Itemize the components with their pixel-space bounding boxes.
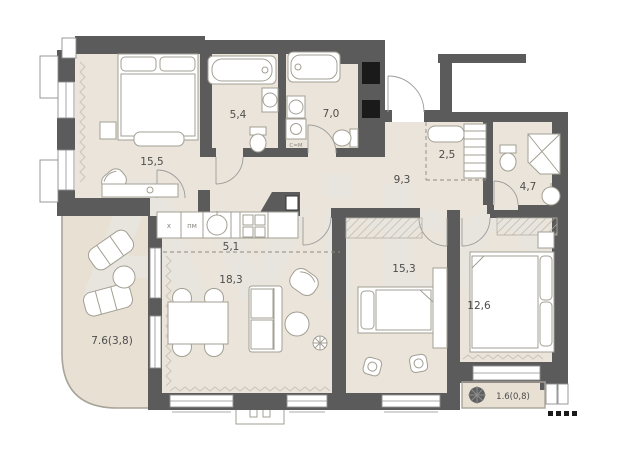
- coffee-table-icon: [285, 312, 309, 336]
- room-label-balcony-large: 7.6(3,8): [91, 335, 133, 347]
- neighbor-box-2: [558, 384, 568, 404]
- kitchen-duct: [286, 196, 298, 210]
- wall-shaft-column: [358, 40, 385, 157]
- room-label-bathroom-1: 5,4: [230, 109, 247, 121]
- toilet-icon: [500, 153, 516, 171]
- sofa-icon: [249, 286, 282, 352]
- plant-icon: [313, 336, 327, 350]
- kitchen-sink-icon: [207, 215, 227, 235]
- dining-table-icon: [168, 302, 228, 344]
- room-label-kitchen: 5,1: [223, 241, 240, 253]
- wall-neighbor-band: [438, 54, 526, 63]
- dresser-icon: [433, 268, 447, 348]
- facade-details: [172, 410, 438, 424]
- floorplan-image: Avito: [0, 0, 640, 452]
- wall-bath-bath: [278, 54, 286, 157]
- floorplan-svg: Avito: [0, 0, 640, 452]
- pillow-icon: [121, 57, 156, 71]
- wall-bath-bottom-1: [205, 148, 216, 157]
- room-label-balcony-small: 1.6(0,8): [496, 392, 530, 402]
- bed-bench-icon: [134, 132, 184, 146]
- room-label-hallway: 9,3: [394, 174, 411, 186]
- nightstand-icon: [538, 232, 554, 248]
- toilet-icon: [250, 134, 266, 152]
- wall-pier: [340, 40, 358, 64]
- console-icon: [102, 184, 178, 197]
- window-balcony-2: [150, 316, 161, 368]
- room-label-bedroom-3: 12,6: [467, 300, 491, 312]
- nightstand-icon: [100, 122, 116, 139]
- pillow-icon: [540, 256, 552, 300]
- dishwasher-label: пм: [187, 222, 197, 230]
- pillow-icon: [361, 291, 374, 329]
- wardrobe-hatch-bedroom2: [346, 218, 422, 238]
- entrance-door-arc: [388, 76, 424, 112]
- room-label-bedroom-2: 15,3: [392, 263, 415, 275]
- shaft-niche-1: [362, 62, 380, 84]
- pillow-icon: [160, 57, 195, 71]
- boundary-dots: [548, 411, 577, 416]
- pilaster-left-2: [40, 160, 58, 202]
- washing-machine-label: С=М: [289, 143, 302, 149]
- window-balcony-1: [150, 248, 161, 298]
- shaft-niche-2: [362, 100, 380, 118]
- wall-left-2: [57, 118, 75, 150]
- wall-entry-vert: [440, 54, 452, 122]
- bench-icon: [428, 126, 464, 142]
- room-label-bathroom-3: 4,7: [520, 181, 537, 193]
- room-label-bathroom-2: 7,0: [323, 108, 340, 120]
- wall-bedroom-bottom: [57, 198, 150, 216]
- kitchen-furniture: х пм: [157, 211, 298, 238]
- room-label-living: 18,3: [219, 274, 242, 286]
- sink-icon: [542, 187, 560, 205]
- pilaster-top: [62, 38, 76, 58]
- toilet-tank: [500, 145, 516, 153]
- wall-bedroom3-top: [490, 210, 556, 218]
- pouf-icon: [409, 354, 429, 374]
- wall-living-bedroom2: [332, 210, 346, 393]
- side-table-icon: [113, 266, 135, 288]
- sink-icon: [289, 100, 303, 114]
- wall-entry-left: [385, 110, 392, 122]
- toilet-icon: [333, 130, 351, 146]
- wall-topright: [452, 112, 568, 122]
- pilaster-left-1: [40, 56, 58, 98]
- shelf-icon: [464, 124, 486, 178]
- fridge-label: х: [167, 222, 171, 230]
- facade-bracket: [236, 410, 284, 424]
- washing-machine-icon: [286, 119, 306, 139]
- neighbor-box-1: [546, 384, 557, 404]
- room-label-wardrobe: 2,5: [439, 149, 456, 161]
- wall-top-left: [75, 36, 205, 54]
- pillow-icon: [540, 302, 552, 346]
- room-label-bedroom-master: 15,5: [140, 156, 163, 168]
- sink-icon: [263, 93, 277, 107]
